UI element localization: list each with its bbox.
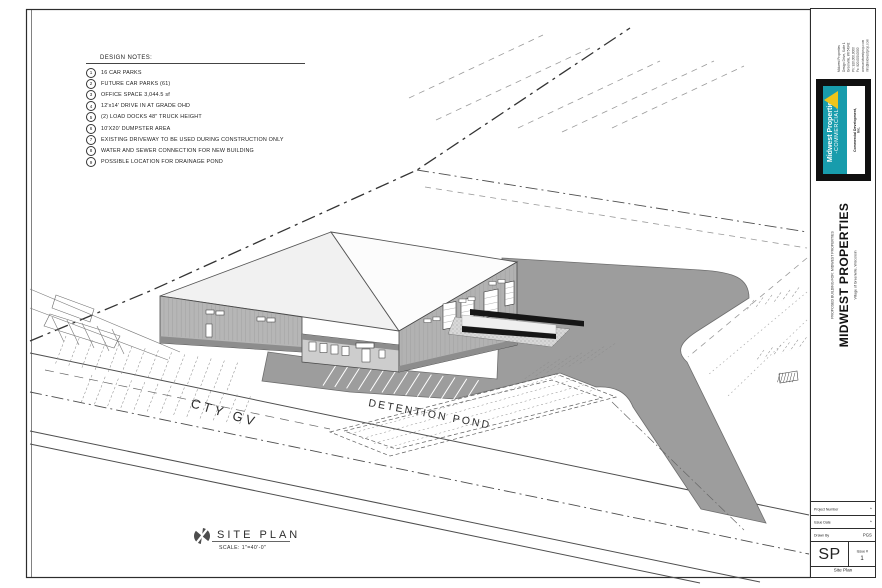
sheet-name: Site Plan: [822, 568, 864, 573]
design-note-item: 7EXISTING DRIVEWAY TO BE USED DURING CON…: [86, 134, 386, 145]
view-scale-text: SCALE: 1"=40'-0": [219, 545, 266, 551]
road-label: CTY GV: [189, 395, 260, 429]
note-number: 8: [86, 146, 96, 156]
entry-canopy: [356, 343, 374, 348]
note-text: EXISTING DRIVEWAY TO BE USED DURING CONS…: [101, 137, 284, 143]
project-number-row: Project Number *: [811, 501, 875, 516]
view-title-text: SITE PLAN: [217, 529, 300, 541]
firm-logo: Midwest Properties -COMMERCIAL- Commerci…: [816, 79, 871, 181]
drawn-by-row: Drawn By PGS: [811, 528, 875, 542]
note-number: 6: [86, 124, 96, 134]
design-note-item: 8WATER AND SEWER CONNECTION FOR NEW BUIL…: [86, 145, 386, 156]
dumpster-pad: [778, 371, 799, 383]
note-text: WATER AND SEWER CONNECTION FOR NEW BUILD…: [101, 148, 254, 154]
existing-driveway: [30, 289, 180, 360]
note-text: OFFICE SPACE 3,044.5 sf: [101, 92, 170, 98]
entry-door: [362, 349, 370, 362]
design-note-item: 9POSSIBLE LOCATION FOR DRAINAGE POND: [86, 157, 386, 168]
note-text: POSSIBLE LOCATION FOR DRAINAGE POND: [101, 159, 223, 165]
issue-number-label: Issue #: [856, 549, 867, 553]
note-text: 16 CAR PARKS: [101, 70, 142, 76]
design-note-item: 412'x14' DRIVE IN AT GRADE OHD: [86, 101, 386, 112]
project-label: PROPOSED BUILDING FOR: MIDWEST PROPERTIE…: [831, 228, 835, 323]
note-number: 9: [86, 157, 96, 167]
view-title: SITE PLAN SCALE: 1"=40'-0": [194, 528, 300, 551]
title-block: Midwest Properties Design Drive, Suite 1…: [810, 8, 876, 578]
note-number: 3: [86, 90, 96, 100]
logo-tagline: Commercial Development, Inc.: [853, 108, 860, 152]
note-text: 12'x14' DRIVE IN AT GRADE OHD: [101, 103, 190, 109]
note-number: 7: [86, 135, 96, 145]
project-name: MIDWEST PROPERTIES: [837, 180, 851, 370]
design-note-item: 610'X20' DUMPSTER AREA: [86, 123, 386, 134]
design-note-item: 5(2) LOAD DOCKS 48" TRUCK HEIGHT: [86, 112, 386, 123]
note-text: (2) LOAD DOCKS 48" TRUCK HEIGHT: [101, 114, 202, 120]
logo-triangle-icon: [824, 91, 838, 109]
design-note-item: 116 CAR PARKS: [86, 67, 386, 78]
man-door: [206, 324, 212, 337]
issue-date-row: Issue Date *: [811, 515, 875, 529]
design-notes: DESIGN NOTES: 116 CAR PARKS 2FUTURE CAR …: [86, 55, 386, 168]
drawing-sheet: { "sheet": { "design_notes": { "title": …: [0, 0, 882, 588]
project-location: Village of Greenville, Wisconsin: [854, 228, 858, 323]
issue-number-value: 1: [860, 556, 863, 562]
sheet-name-row: Site Plan: [811, 566, 875, 579]
sheet-code-row: SP Issue # 1: [811, 541, 875, 567]
note-text: FUTURE CAR PARKS (61): [101, 81, 170, 87]
warehouse-building: [160, 232, 517, 372]
firm-address: Midwest Properties Design Drive, Suite 1…: [837, 18, 870, 72]
design-notes-title: DESIGN NOTES:: [86, 55, 305, 64]
note-number: 1: [86, 68, 96, 78]
note-number: 5: [86, 112, 96, 122]
note-text: 10'X20' DUMPSTER AREA: [101, 126, 170, 132]
sheet-code: SP: [811, 542, 848, 567]
project-title-block: PROPOSED BUILDING FOR: MIDWEST PROPERTIE…: [829, 180, 859, 370]
design-note-item: 2FUTURE CAR PARKS (61): [86, 78, 386, 89]
pond-label: DETENTION POND: [367, 397, 492, 432]
note-number: 4: [86, 101, 96, 111]
design-note-item: 3OFFICE SPACE 3,044.5 sf: [86, 89, 386, 100]
note-number: 2: [86, 79, 96, 89]
